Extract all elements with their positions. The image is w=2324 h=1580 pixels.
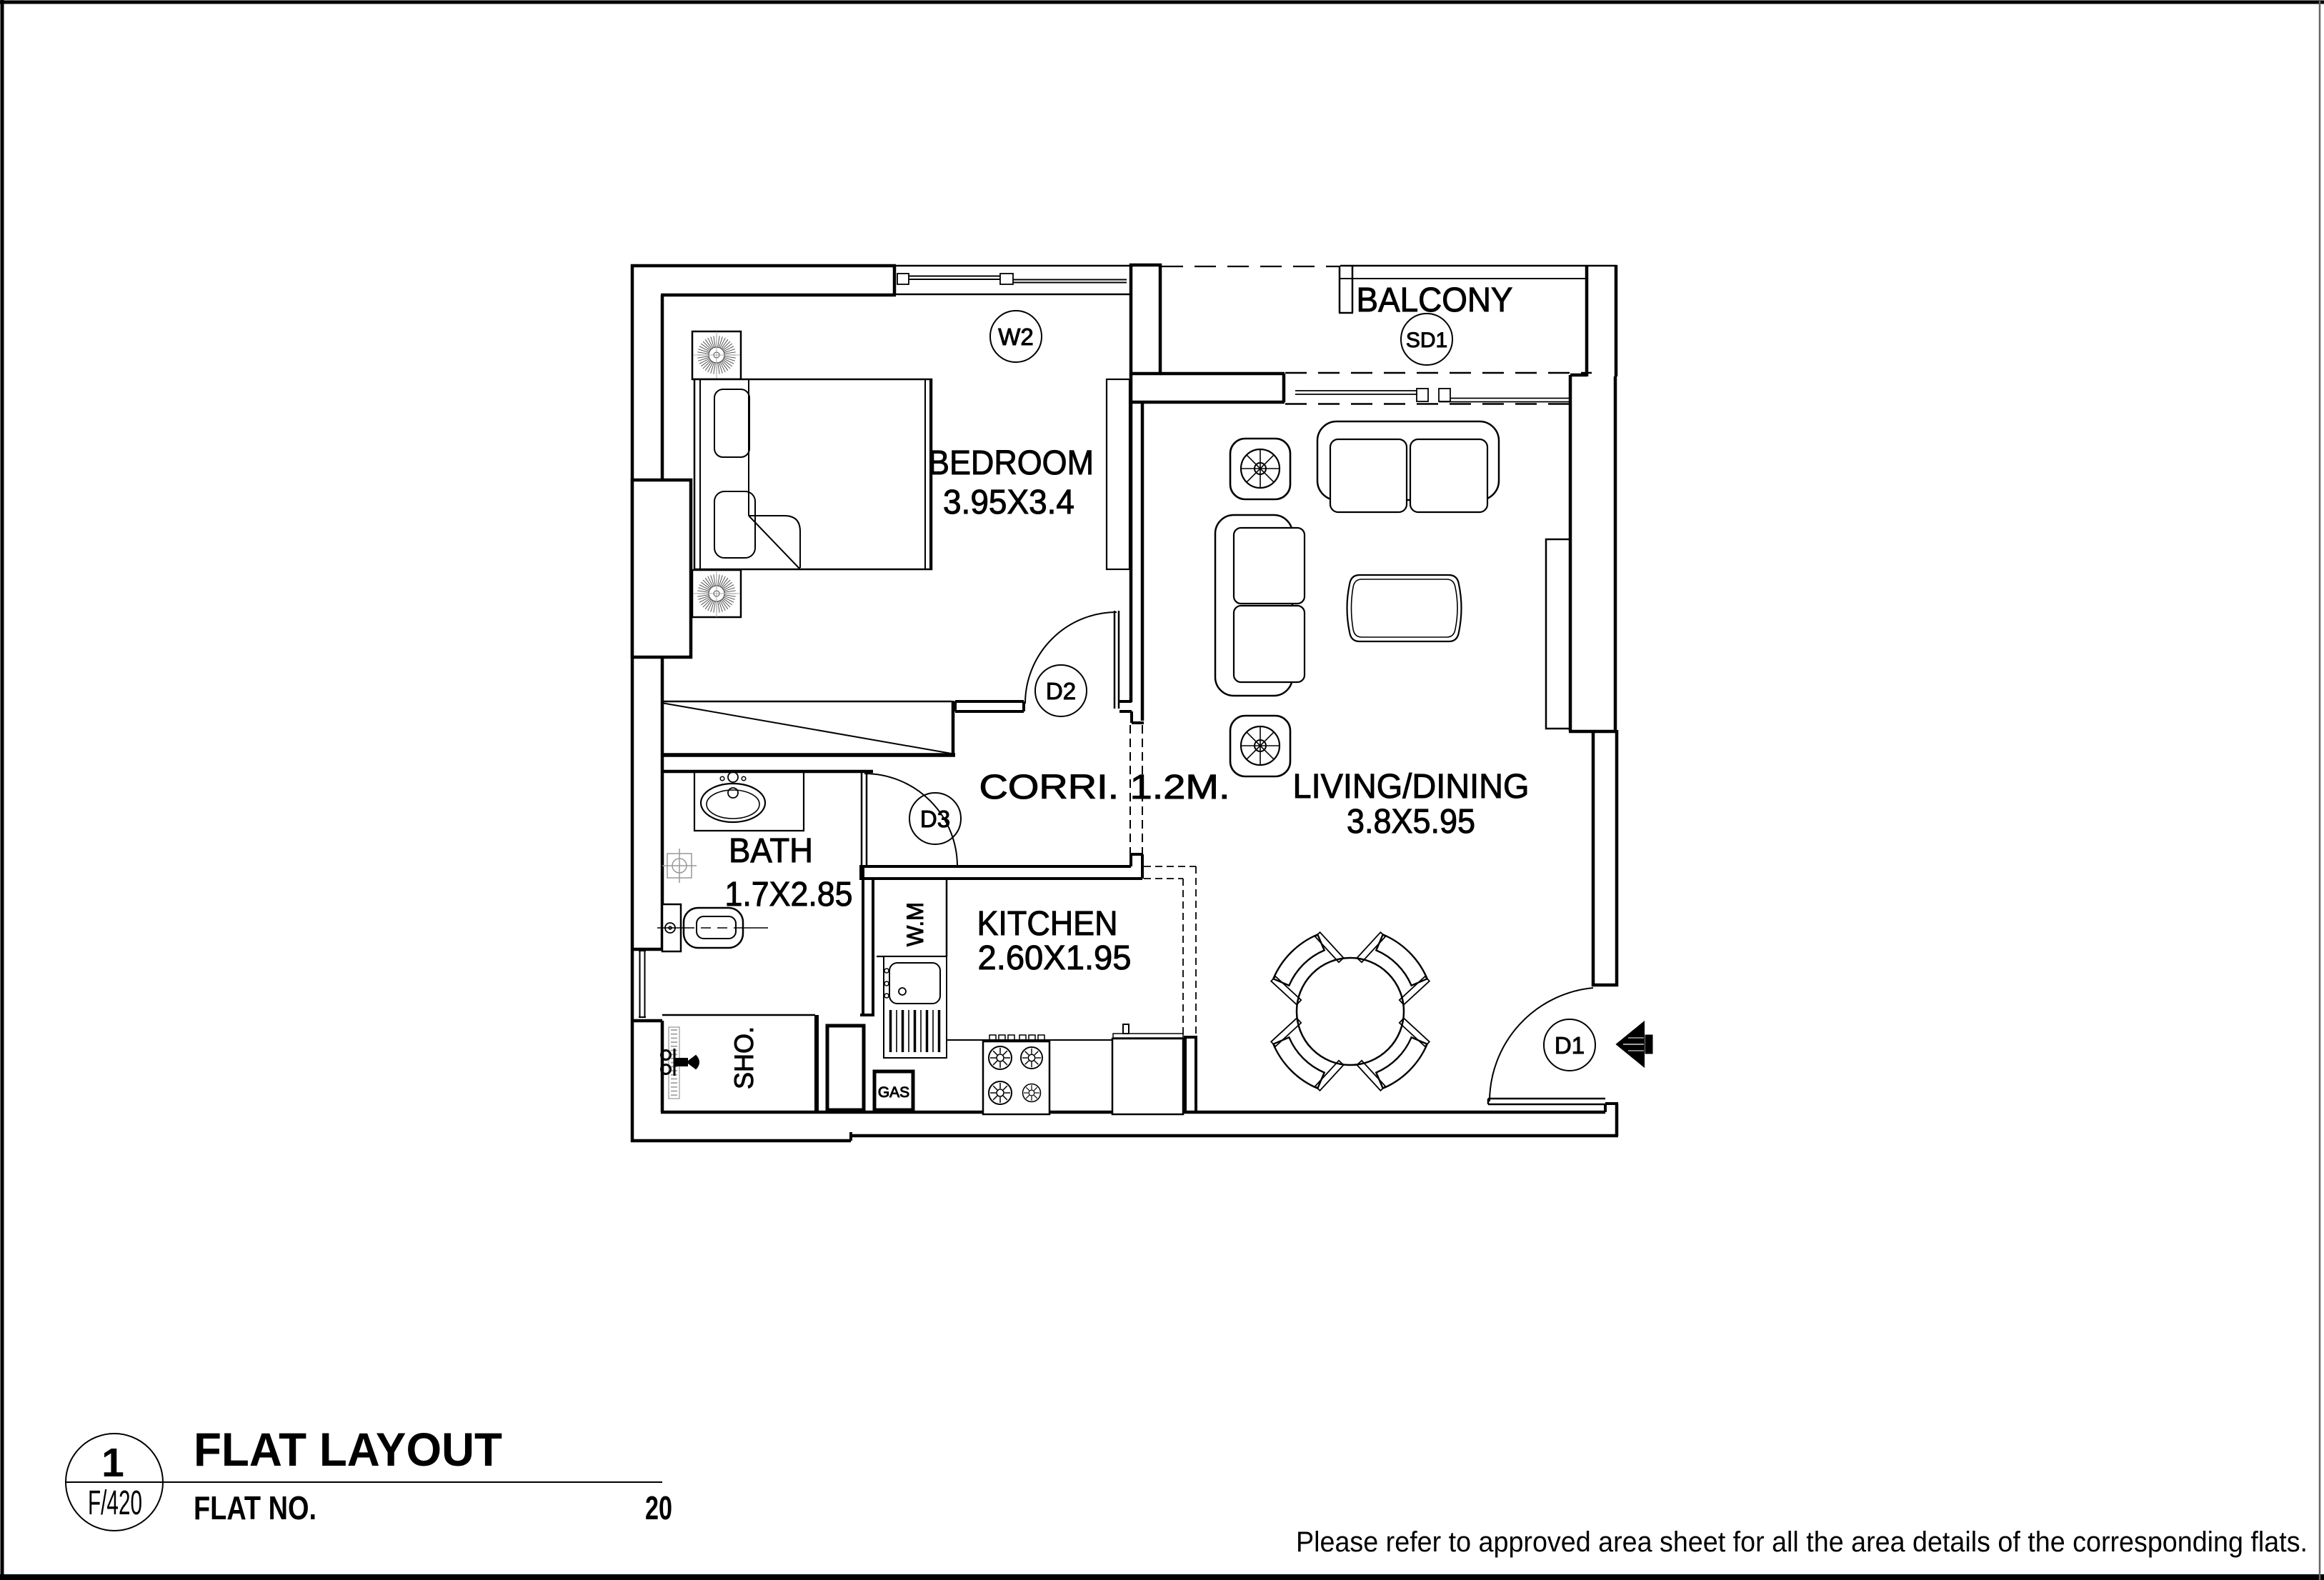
svg-text:3.8X5.95: 3.8X5.95 — [1347, 803, 1475, 841]
svg-text:BATH: BATH — [729, 832, 813, 870]
svg-text:D2: D2 — [1046, 678, 1076, 704]
svg-text:20: 20 — [645, 1489, 672, 1526]
svg-text:Please refer to approved area: Please refer to approved area sheet for … — [1296, 1526, 2308, 1558]
svg-text:1.7X2.85: 1.7X2.85 — [725, 876, 853, 914]
svg-text:SHO.: SHO. — [729, 1026, 759, 1089]
svg-text:FLAT LAYOUT: FLAT LAYOUT — [194, 1423, 502, 1476]
svg-text:CORRI. 1.2M.: CORRI. 1.2M. — [979, 769, 1230, 806]
svg-text:BALCONY: BALCONY — [1357, 281, 1513, 319]
svg-text:2.60X1.95: 2.60X1.95 — [978, 939, 1132, 977]
svg-text:KITCHEN: KITCHEN — [977, 905, 1118, 943]
svg-text:BEDROOM: BEDROOM — [928, 444, 1094, 482]
svg-text:GAS: GAS — [878, 1084, 909, 1101]
svg-text:LIVING/DINING: LIVING/DINING — [1293, 768, 1530, 806]
svg-text:W.M: W.M — [902, 902, 928, 946]
svg-text:FLAT NO.: FLAT NO. — [194, 1489, 316, 1526]
svg-text:F/420: F/420 — [88, 1484, 142, 1522]
svg-text:SD1: SD1 — [1406, 329, 1447, 352]
svg-text:D1: D1 — [1555, 1032, 1585, 1059]
svg-text:1: 1 — [101, 1440, 124, 1486]
svg-text:W2: W2 — [998, 324, 1034, 350]
svg-text:3.95X3.4: 3.95X3.4 — [943, 484, 1074, 521]
svg-text:D3: D3 — [920, 806, 950, 832]
